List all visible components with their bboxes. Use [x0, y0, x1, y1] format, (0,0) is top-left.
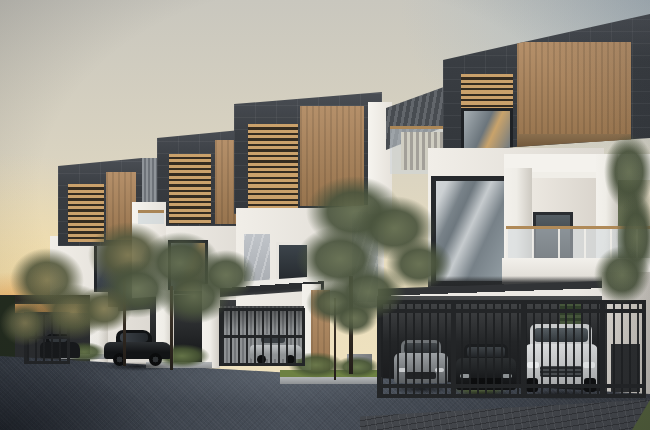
car-black-sedan: [104, 328, 172, 368]
timber-louver-window: [248, 124, 298, 212]
architectural-render: [0, 0, 650, 430]
brick-pavers: [360, 396, 650, 430]
window: [461, 108, 513, 152]
planter-curb: [280, 377, 382, 384]
carport-gate: [219, 308, 305, 366]
shrub: [334, 356, 380, 378]
carport-gate-wide: [377, 300, 646, 398]
balcony-railing: [138, 210, 164, 224]
timber-louver-window: [169, 154, 211, 224]
timber-louver-screen: [461, 74, 513, 110]
timber-panel: [517, 42, 631, 142]
